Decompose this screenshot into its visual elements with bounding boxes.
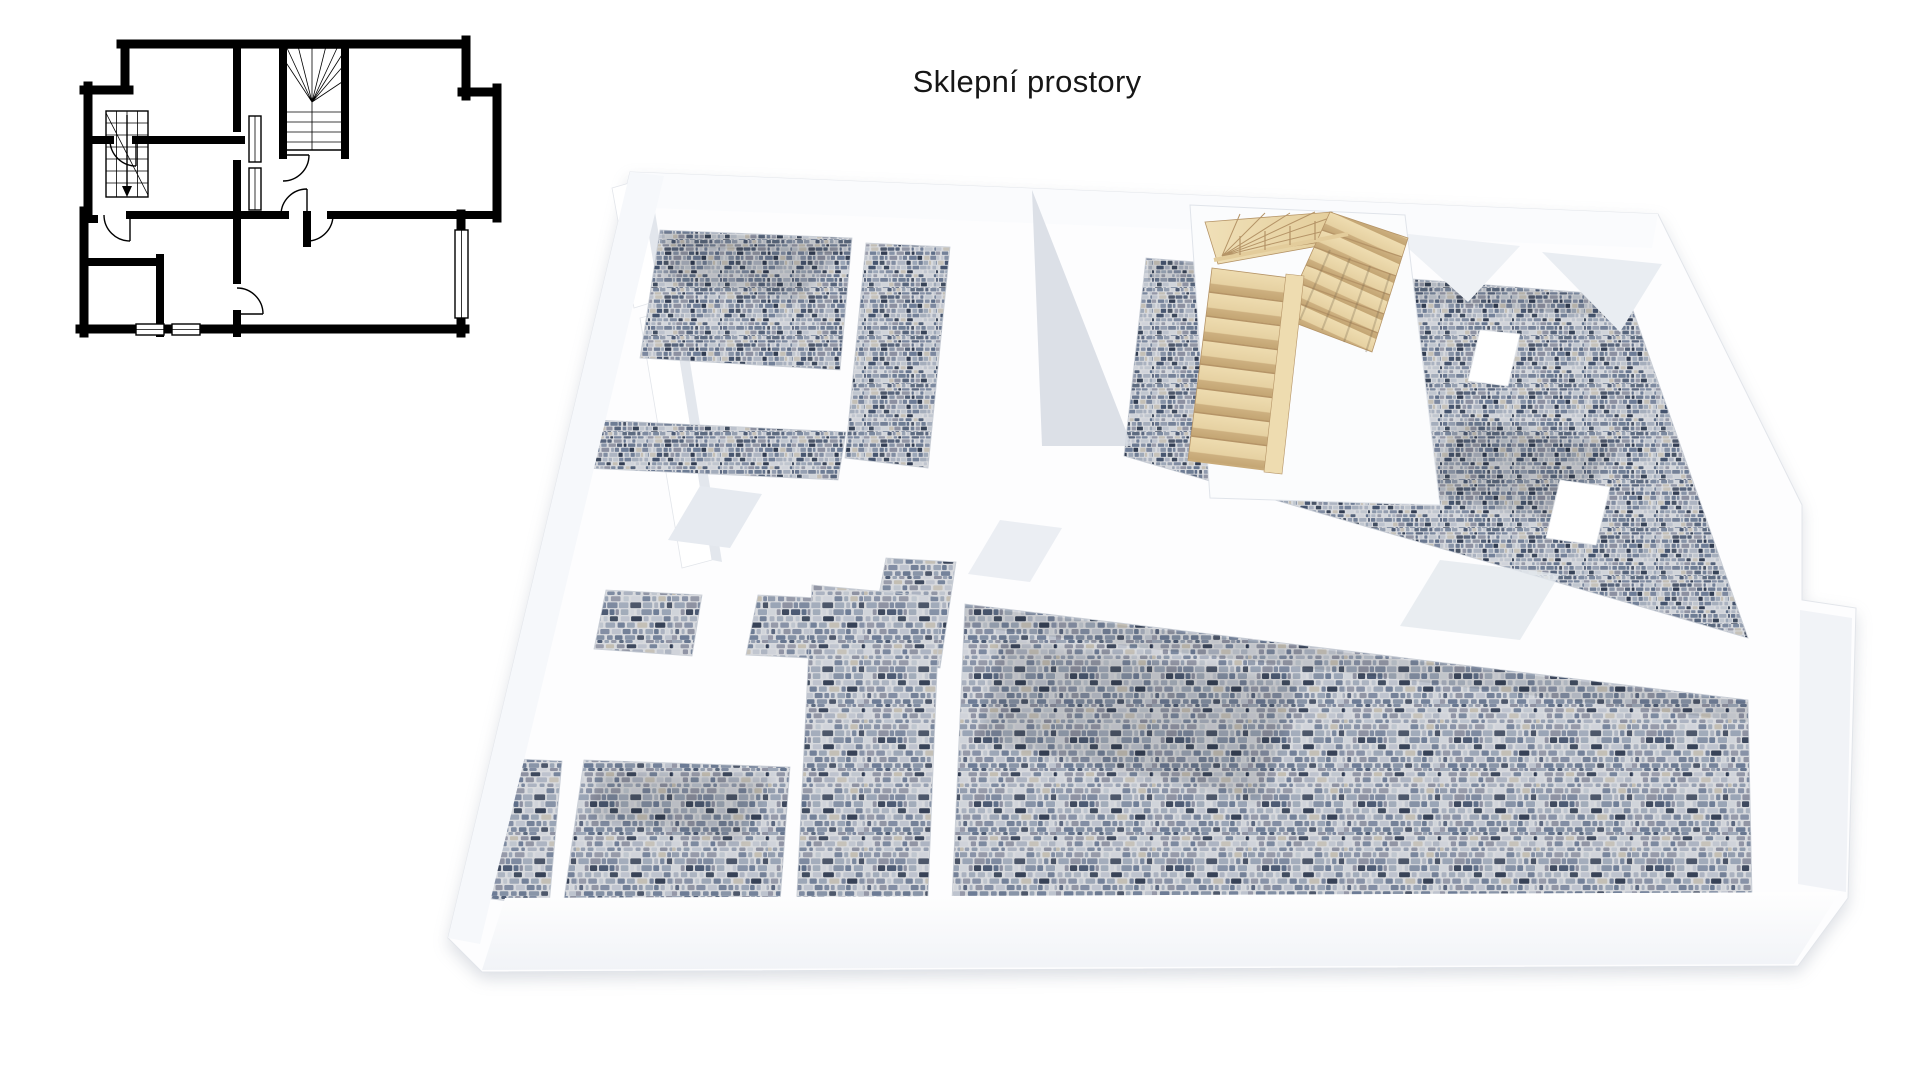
wooden-staircase — [1188, 205, 1440, 505]
storage-cell-floor — [594, 590, 702, 656]
floor-plan-2d — [80, 40, 497, 335]
scene-canvas — [0, 0, 1920, 1080]
room-floor — [795, 585, 940, 944]
page: { "title": "Sklepní prostory", "colors":… — [0, 0, 1920, 1080]
plan2d-winder-stair-icon — [283, 46, 345, 150]
plan2d-hatched-stair-icon — [106, 111, 148, 197]
basement-3d-render — [448, 172, 1856, 979]
plan2d-doors — [104, 140, 333, 314]
plan2d-windows — [136, 116, 468, 335]
plan2d-inner-walls — [84, 44, 497, 333]
plan2d-outer-walls — [80, 40, 497, 333]
